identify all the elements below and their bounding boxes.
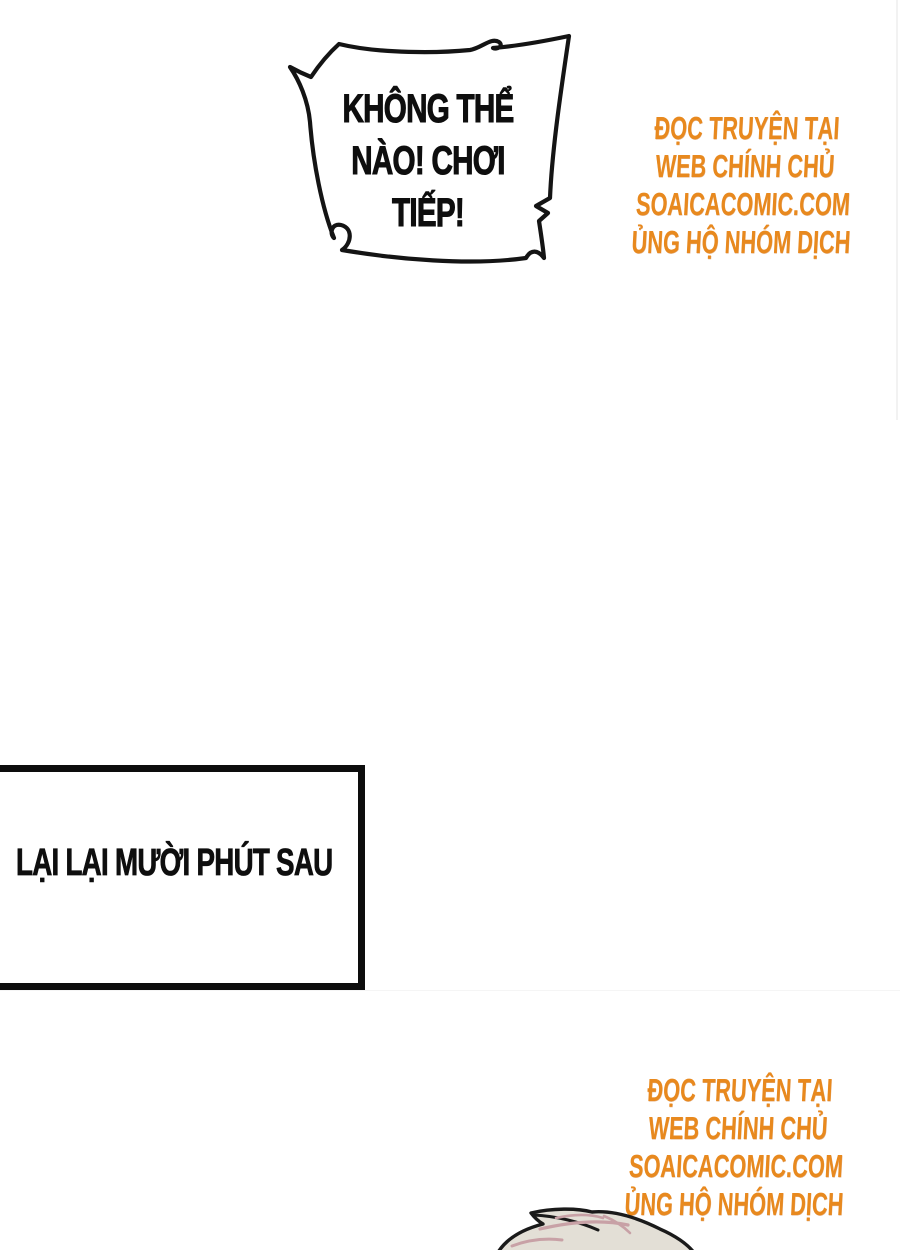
speech-bubble-text: KHÔNG THỂ NÀO! CHƠI TIẾP! — [287, 83, 569, 239]
watermark-line: SOAICACOMIC.COM — [623, 1147, 849, 1185]
watermark-line: ĐỌC TRUYỆN TẠI — [627, 1071, 853, 1109]
watermark-line: SOAICACOMIC.COM — [630, 185, 856, 223]
speech-bubble-line: KHÔNG THỂ — [324, 83, 533, 135]
speech-bubble-line: TIẾP! — [324, 187, 533, 239]
scan-edge-line — [896, 0, 898, 420]
scan-seam-line — [0, 990, 900, 991]
watermark-line: WEB CHÍNH CHỦ — [632, 147, 858, 185]
caption-text: LẠI LẠI MƯỜI PHÚT SAU — [16, 841, 332, 885]
character-head — [440, 1195, 730, 1250]
watermark-line: ỦNG HỘ NHÓM DỊCH — [628, 223, 854, 261]
watermark-line: ĐỌC TRUYỆN TẠI — [634, 109, 860, 147]
comic-page: KHÔNG THỂ NÀO! CHƠI TIẾP! ĐỌC TRUYỆN TẠI… — [0, 0, 900, 1250]
watermark-line: WEB CHÍNH CHỦ — [625, 1109, 851, 1147]
watermark-top: ĐỌC TRUYỆN TẠI WEB CHÍNH CHỦ SOAICACOMIC… — [575, 109, 900, 261]
speech-bubble-line: NÀO! CHƠI — [324, 135, 533, 187]
